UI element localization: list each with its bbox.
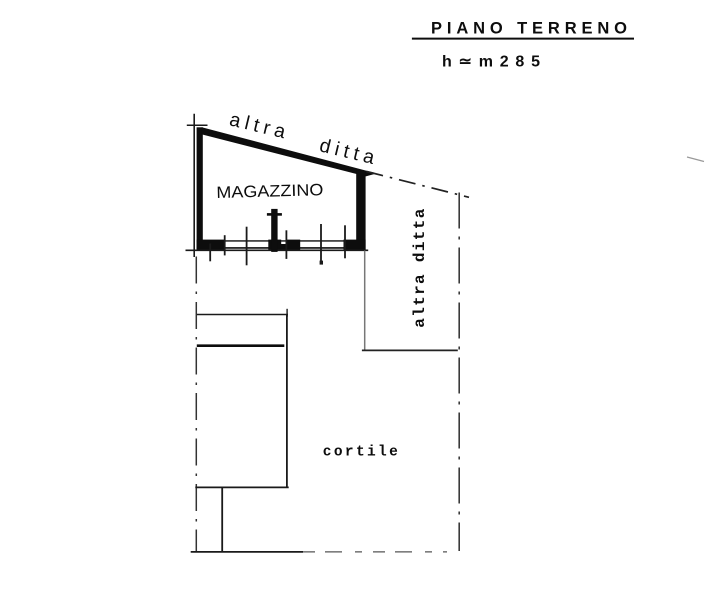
svg-text:MAGAZZINO: MAGAZZINO	[216, 181, 324, 202]
svg-text:h ≃ m 2 8 5: h ≃ m 2 8 5	[442, 54, 540, 71]
svg-text:altra ditta: altra ditta	[411, 208, 429, 327]
svg-text:cortile: cortile	[323, 445, 398, 461]
